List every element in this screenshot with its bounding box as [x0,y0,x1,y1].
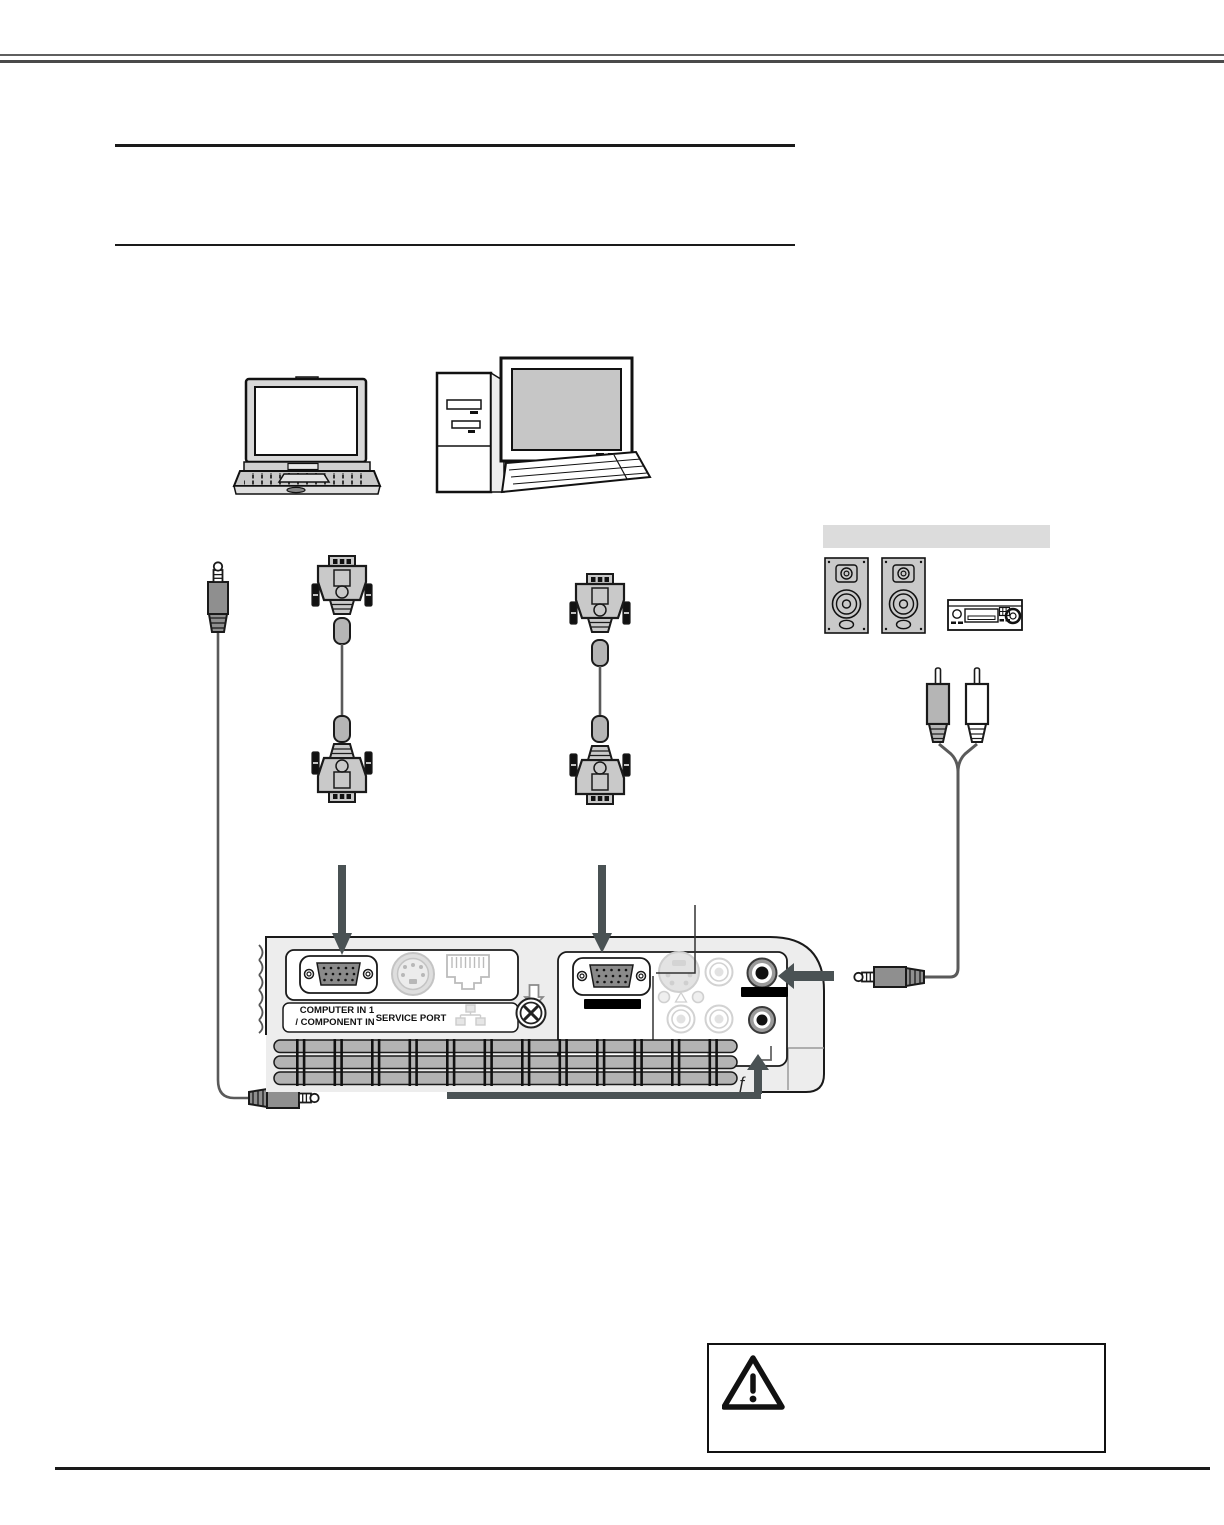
stray-glyph: ƒ [737,1073,746,1092]
computer-in-1-label-line2: / COMPONENT IN [295,1017,374,1028]
side-vent-holes [259,945,263,1033]
minijack-plug-up [208,562,228,632]
redacted-label-bar-audio-out [741,987,788,997]
manual-page: { "panel_labels": { "computer_in_line1":… [0,0,1224,1525]
rca-audio-cable [854,668,988,987]
computer-in-1-vga-port [300,956,377,993]
external-audio-equipment [823,525,1050,633]
vent-grille [274,1039,737,1086]
vga-cable-1 [312,556,372,802]
redacted-label-bar-computer-in-2 [584,999,641,1009]
speaker-left-illustration [825,558,868,633]
computer-in-1-label-line1: COMPUTER IN 1 [300,1005,375,1016]
screw-icon [517,999,546,1028]
rca-plug-gray [927,668,949,742]
connection-diagram: COMPUTER IN 1 / COMPONENT IN SERVICE POR… [0,0,1224,1525]
video-rca-jack-disabled [706,959,733,986]
audio-equipment-header-bar [823,525,1050,548]
audio-in-jack [749,1007,775,1033]
minijack-plug-left [854,967,924,987]
amplifier-illustration [948,600,1022,630]
service-port-label: SERVICE PORT [376,1013,447,1024]
rca-plug-white [966,668,988,742]
vga-cable-2 [570,574,630,804]
speaker-right-illustration [882,558,925,633]
s-video-port-disabled [659,952,699,992]
warning-triangle-icon [722,1354,786,1412]
computer-in-2-vga-port [573,958,650,995]
audio-out-jack [748,959,777,988]
desktop-computer-illustration [437,358,650,492]
caution-box [707,1343,1106,1453]
port-label-strip: COMPUTER IN 1 / COMPONENT IN SERVICE POR… [283,1003,518,1032]
service-port-din [392,953,434,995]
laptop-illustration [234,377,380,494]
